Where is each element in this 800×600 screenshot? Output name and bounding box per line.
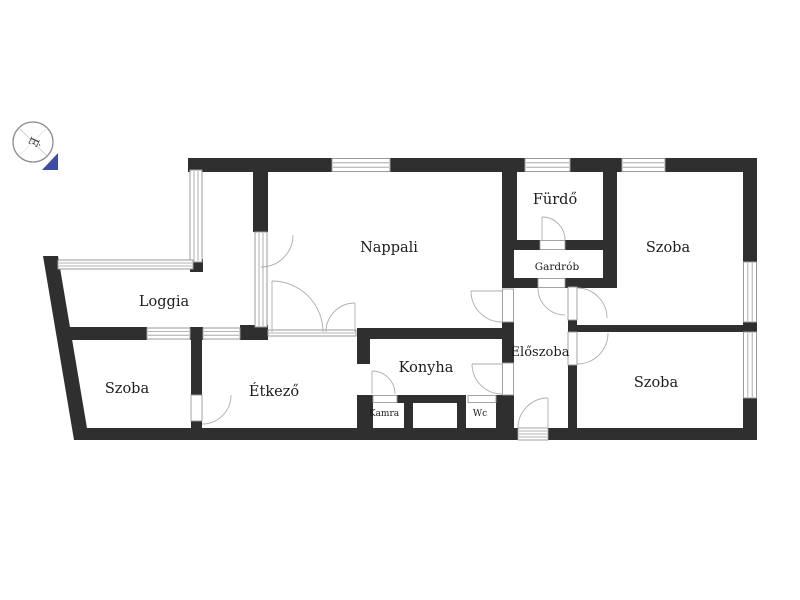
wall-right-a: [743, 158, 757, 262]
door-opening-szoba-bl: [191, 395, 202, 421]
window-szoba-br-right: [744, 332, 757, 398]
wall-furdo-bottom-a: [502, 240, 540, 250]
wall-left-diagonal: [43, 256, 89, 440]
room-label-konyha: Konyha: [399, 360, 454, 376]
window-nappali-loggia: [255, 232, 267, 327]
wall-nappali-west: [253, 160, 268, 232]
entrance-door: [518, 428, 548, 440]
door-gardrob: [538, 288, 565, 315]
wall-shaft-top: [397, 395, 457, 403]
wall-furdo-left: [502, 172, 517, 248]
door-opening-gardrob: [538, 279, 565, 288]
wall-szoba-divider: [568, 325, 743, 332]
wall-szoba-etkezo-b: [191, 421, 202, 430]
wall-top-b: [390, 158, 525, 172]
window-szoba-tr-right: [744, 262, 757, 322]
room-label-nappali: Nappali: [360, 240, 418, 256]
wall-loggia-bottom-b: [190, 327, 203, 340]
wall-szoba-etkezo-a: [191, 340, 202, 395]
window-etkezo-loggia: [203, 328, 240, 339]
wall-gardrob-bottom-b: [565, 278, 617, 288]
door-szoba-top-right: [577, 288, 607, 318]
room-label-szoba-bl: Szoba: [105, 381, 150, 397]
door-konyha-eloszoba: [472, 364, 502, 394]
window-szoba-tr-top: [622, 159, 665, 172]
wall-nappali-konyha: [357, 328, 514, 339]
door-opening-konyha: [503, 363, 514, 395]
room-label-szoba-tr: Szoba: [646, 240, 691, 256]
window-furdo-top: [525, 159, 570, 172]
door-szoba-etkezo: [202, 395, 231, 424]
door-furdo: [542, 217, 565, 240]
door-opening-kamra: [373, 396, 397, 403]
floor-plan: Loggia Szoba Étkező Nappali Konyha Kamra…: [0, 0, 800, 600]
loggia-rail-vertical: [190, 170, 202, 262]
room-label-wc: Wc: [473, 409, 487, 419]
door-opening-szoba-tr: [568, 287, 577, 320]
wall-gardrob-bottom-a: [502, 278, 538, 288]
wall-right-b: [743, 322, 757, 332]
room-label-kamra: Kamra: [369, 409, 400, 419]
room-label-szoba-br: Szoba: [634, 375, 679, 391]
wall-corridor-right-b: [568, 365, 577, 428]
compass: É: [13, 122, 58, 170]
loggia-rail-horizontal: [58, 260, 193, 269]
french-door-threshold: [268, 330, 356, 336]
wall-wc-right: [496, 395, 514, 440]
wall-bottom: [74, 428, 757, 440]
door-opening-wc: [468, 396, 496, 403]
wall-loggia-bottom-a: [58, 327, 147, 340]
window-nappali-top: [332, 159, 390, 172]
room-label-loggia: Loggia: [139, 294, 190, 310]
french-door-left: [272, 281, 323, 332]
room-label-eloszoba: Előszoba: [511, 345, 570, 360]
door-opening-furdo: [540, 241, 565, 250]
door-entrance-swing: [518, 398, 548, 428]
room-label-gardrob: Gardrób: [535, 261, 580, 273]
room-label-etkezo: Étkező: [249, 382, 299, 400]
wall-gardrob-right: [603, 172, 617, 288]
room-label-furdo: Fürdő: [533, 192, 577, 208]
wall-kamra-right: [404, 403, 413, 428]
door-opening-nappali: [503, 289, 514, 322]
door-nappali-eloszoba: [471, 291, 502, 322]
window-szoba-bl-loggia: [147, 328, 190, 339]
door-kamra: [372, 371, 395, 394]
wall-top-c: [570, 158, 622, 172]
door-szoba-bottom-right: [577, 333, 608, 364]
french-door-right: [326, 303, 355, 332]
wall-etkezo-konyha-stub: [357, 337, 370, 364]
wall-shaft-wc: [457, 395, 466, 428]
floor-plan-page: Loggia Szoba Étkező Nappali Konyha Kamra…: [0, 0, 800, 600]
